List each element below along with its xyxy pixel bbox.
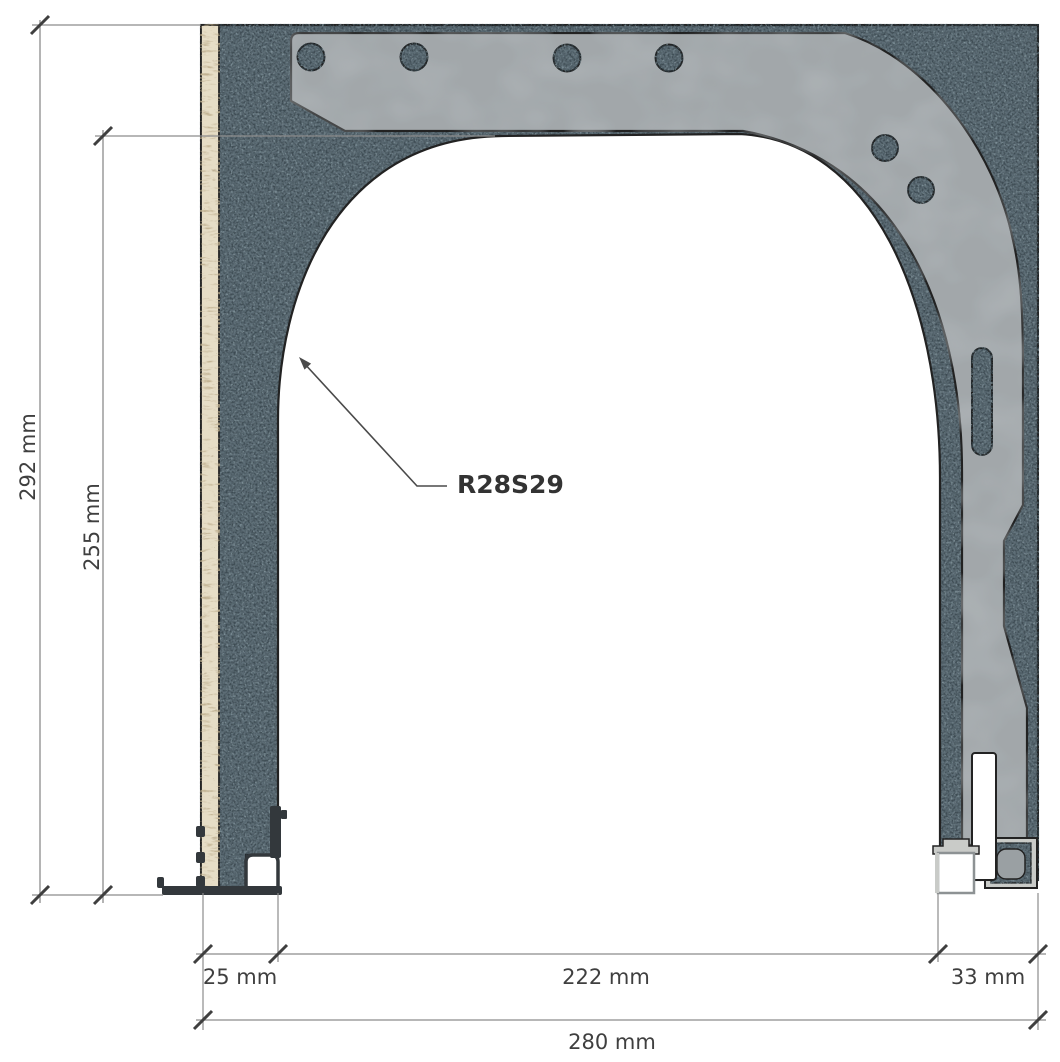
dim-label-total-height: 292 mm	[16, 413, 40, 501]
dim-label-opening-height: 255 mm	[80, 483, 104, 571]
rail-groove	[972, 753, 996, 880]
wood-board-shape	[201, 25, 219, 890]
notch-outline	[246, 855, 278, 890]
arch-opening	[278, 134, 940, 892]
mounting-hole	[401, 44, 428, 71]
dim-label-left-jamb: 25 mm	[203, 965, 277, 989]
dim-label-guide-rail: 33 mm	[951, 965, 1025, 989]
profile-label: R28S29	[457, 470, 564, 499]
mounting-hole	[656, 45, 683, 72]
profile-hook	[157, 877, 164, 888]
technical-drawing: 292 mm 255 mm 25 mm 222 mm 33 mm 280 mm …	[0, 0, 1060, 1058]
profile-clip	[196, 852, 205, 863]
mounting-hole	[554, 45, 581, 72]
rail-side-strip	[935, 853, 939, 893]
profile-upright	[270, 806, 281, 858]
profile-clip	[196, 876, 205, 887]
wood-board	[201, 25, 219, 890]
rail-pocket	[938, 853, 974, 893]
profile-upright-hook	[281, 810, 287, 819]
dim-label-total-width: 280 mm	[568, 1030, 656, 1054]
rail-seal-core	[997, 849, 1025, 879]
mounting-hole	[298, 44, 325, 71]
profile-clip	[196, 826, 205, 837]
mounting-slot	[972, 348, 992, 455]
dim-label-clear-opening: 222 mm	[562, 965, 650, 989]
mounting-hole	[872, 135, 898, 161]
drawing-canvas: 292 mm 255 mm 25 mm 222 mm 33 mm 280 mm …	[0, 0, 1060, 1058]
mounting-hole	[908, 177, 934, 203]
profile-flange	[162, 886, 282, 895]
